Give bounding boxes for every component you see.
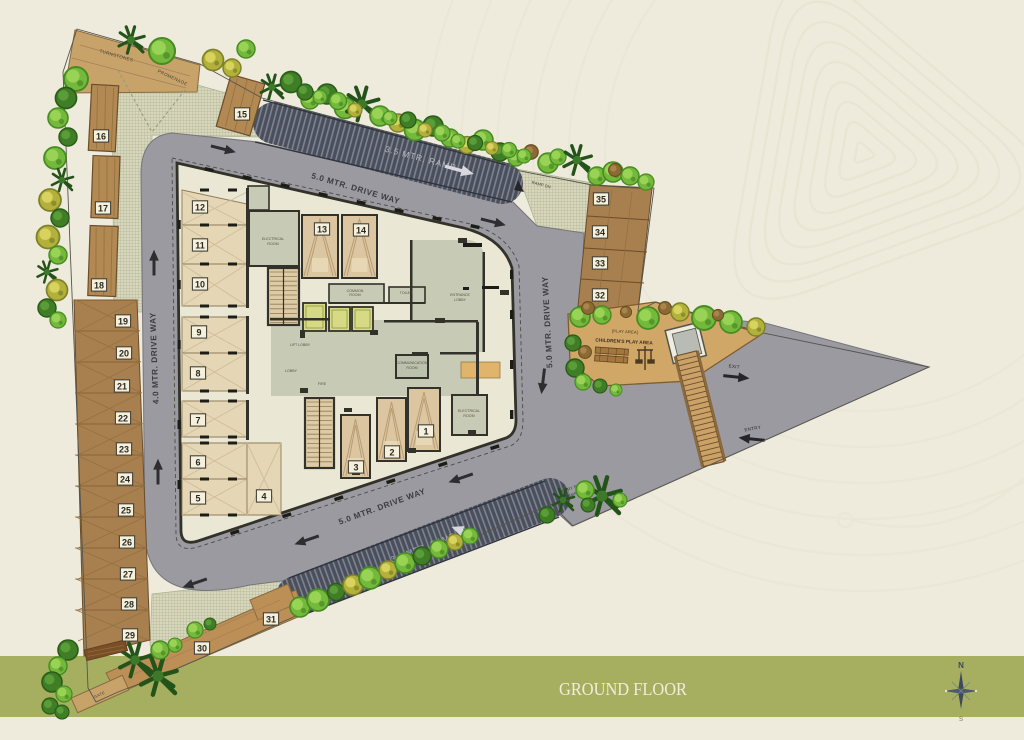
svg-text:ROOM: ROOM [406, 366, 417, 370]
svg-text:29: 29 [125, 630, 135, 640]
svg-text:7: 7 [195, 415, 200, 425]
svg-text:34: 34 [595, 227, 605, 237]
svg-text:5: 5 [195, 493, 200, 503]
svg-text:6: 6 [195, 457, 200, 467]
svg-text:FIRE: FIRE [318, 382, 327, 386]
svg-text:21: 21 [117, 381, 127, 391]
svg-text:35: 35 [596, 194, 606, 204]
svg-text:23: 23 [119, 444, 129, 454]
svg-text:COMMUNICATION: COMMUNICATION [397, 361, 428, 365]
svg-text:3: 3 [353, 462, 358, 472]
svg-text:ELECTRICAL: ELECTRICAL [262, 237, 284, 241]
svg-text:30: 30 [197, 643, 207, 653]
svg-text:4: 4 [261, 491, 266, 501]
svg-text:32: 32 [595, 290, 605, 300]
svg-text:1: 1 [423, 426, 428, 436]
svg-text:26: 26 [122, 537, 132, 547]
svg-text:10: 10 [195, 279, 205, 289]
svg-text:N: N [958, 661, 964, 670]
svg-text:8: 8 [195, 368, 200, 378]
svg-text:ROOM: ROOM [267, 242, 278, 246]
svg-text:14: 14 [356, 225, 366, 235]
svg-text:2: 2 [389, 447, 394, 457]
svg-text:ROOM: ROOM [463, 414, 474, 418]
svg-text:24: 24 [120, 474, 130, 484]
svg-text:16: 16 [96, 131, 106, 141]
svg-text:GROUND FLOOR: GROUND FLOOR [559, 679, 687, 699]
svg-text:22: 22 [118, 413, 128, 423]
svg-text:28: 28 [124, 599, 134, 609]
svg-text:ROOM: ROOM [349, 293, 360, 297]
svg-text:12: 12 [195, 202, 205, 212]
svg-text:19: 19 [118, 316, 128, 326]
svg-text:27: 27 [123, 569, 133, 579]
svg-text:15: 15 [237, 109, 247, 119]
svg-text:20: 20 [119, 348, 129, 358]
svg-text:17: 17 [98, 203, 108, 213]
svg-text:S: S [959, 717, 963, 723]
svg-text:13: 13 [317, 224, 327, 234]
svg-text:ELECTRICAL: ELECTRICAL [458, 409, 480, 413]
svg-text:31: 31 [266, 614, 276, 624]
svg-text:33: 33 [595, 258, 605, 268]
svg-text:9: 9 [196, 327, 201, 337]
svg-text:ENTRANCE: ENTRANCE [450, 293, 470, 297]
svg-text:25: 25 [121, 505, 131, 515]
svg-text:18: 18 [94, 280, 104, 290]
svg-text:LOBBY: LOBBY [454, 298, 467, 302]
svg-text:11: 11 [195, 240, 205, 250]
svg-text:TOILET: TOILET [400, 291, 413, 295]
svg-text:LOBBY: LOBBY [285, 369, 298, 373]
svg-text:LIFT LOBBY: LIFT LOBBY [290, 343, 311, 347]
